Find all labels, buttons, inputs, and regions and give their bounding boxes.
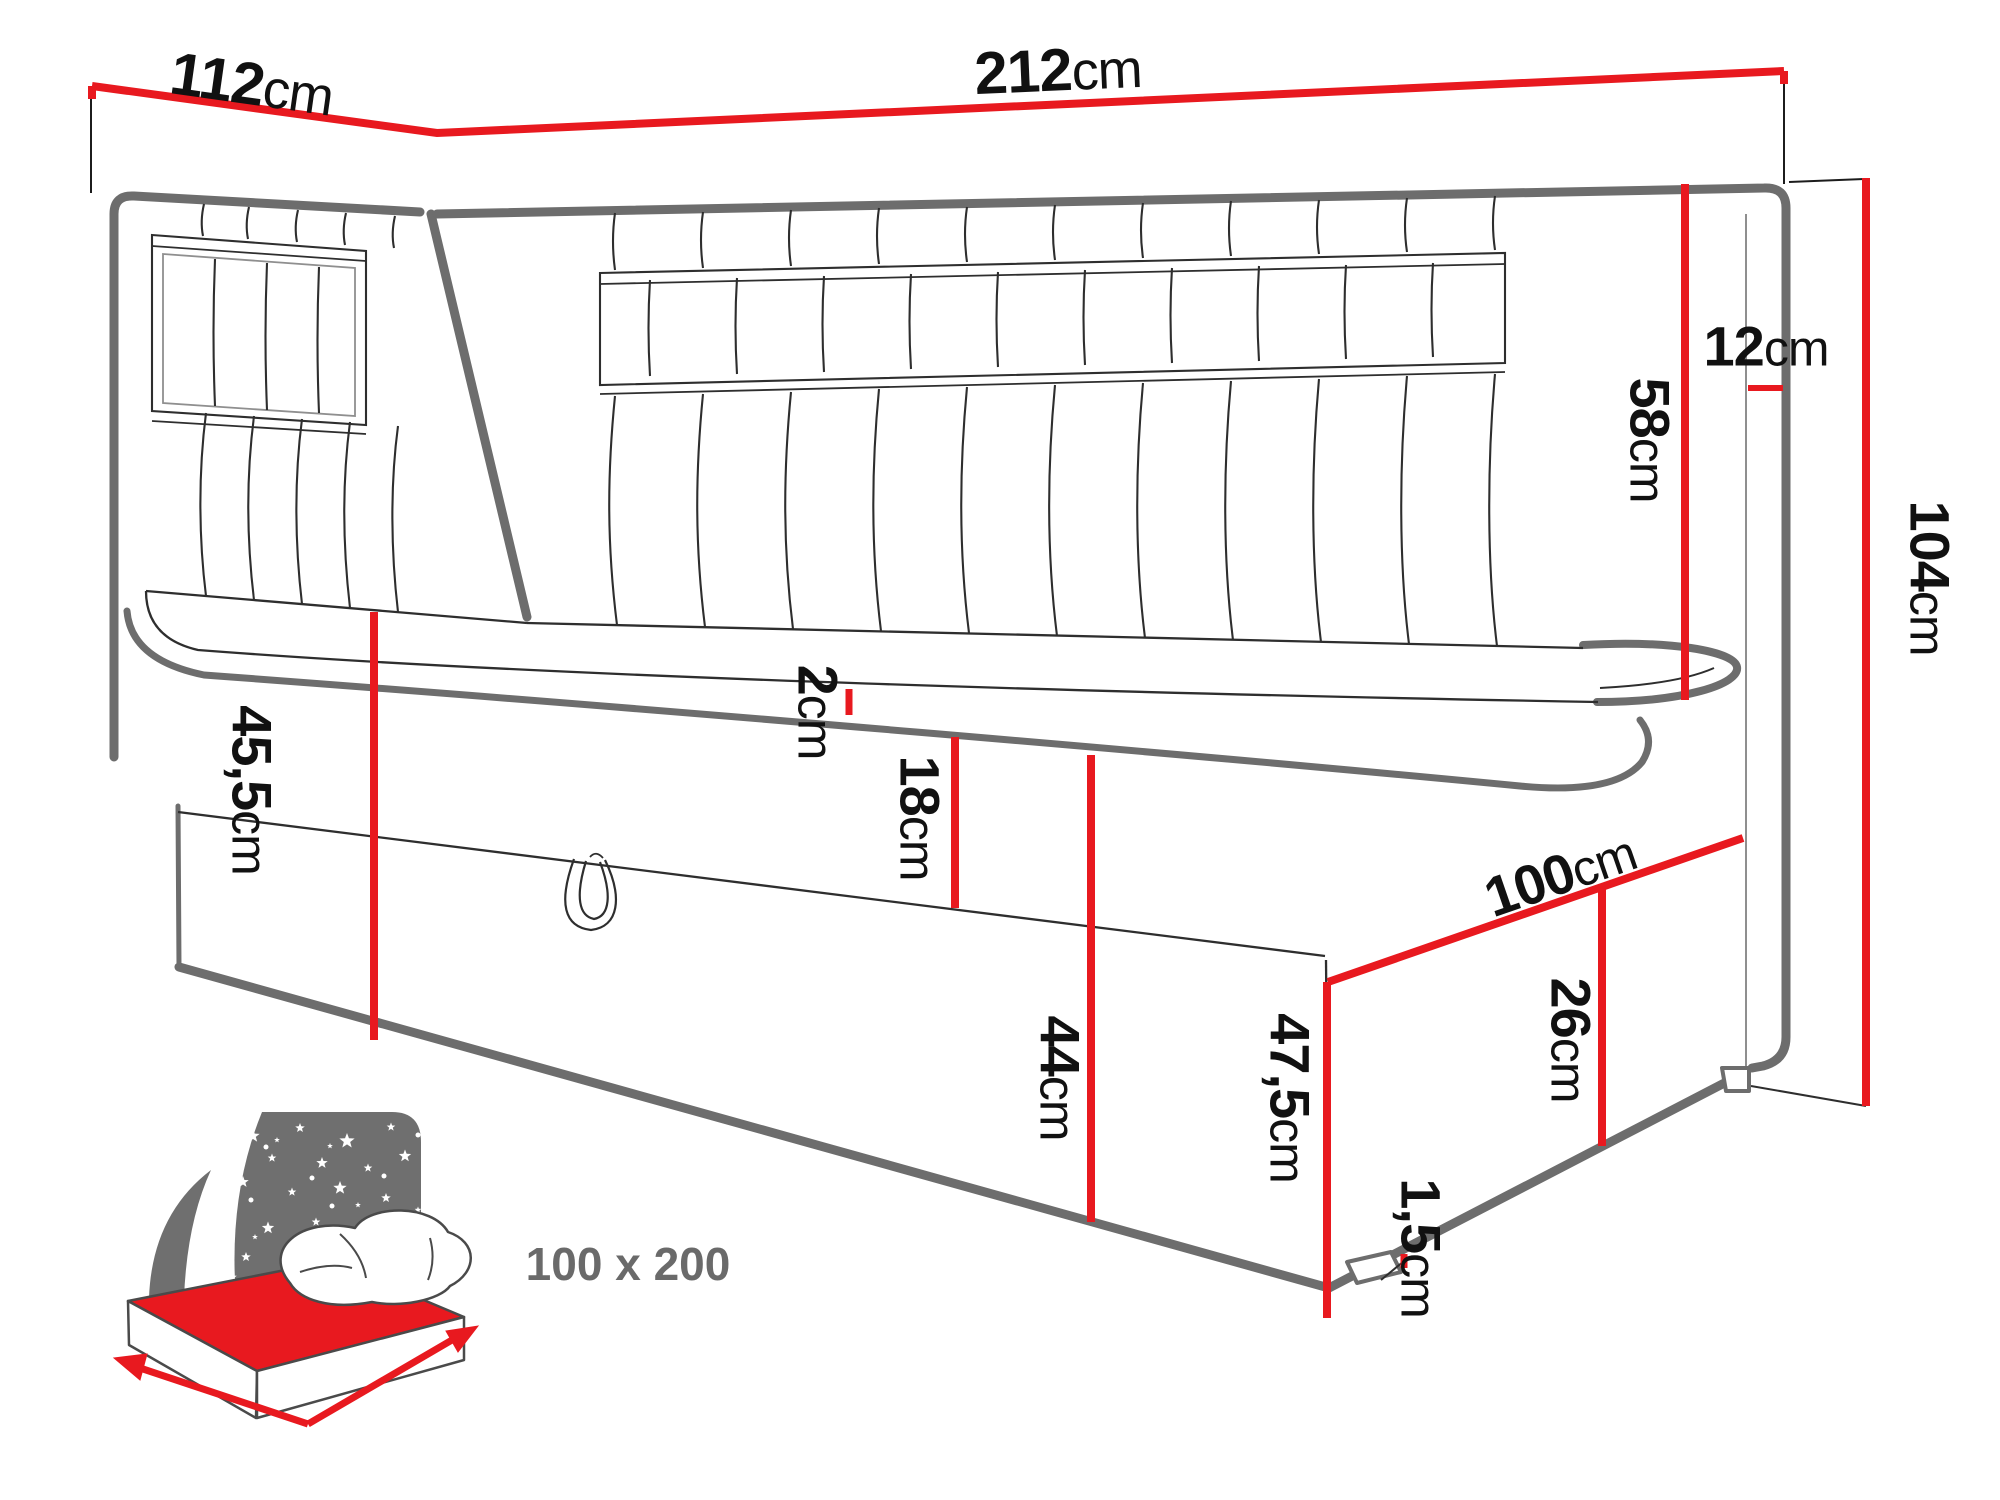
dim-unit: cm — [1070, 39, 1143, 102]
dim-label-45_5cm: 45,5cm — [220, 705, 285, 875]
base-left-edge — [178, 806, 179, 967]
dim-label-47_5cm: 47,5cm — [1258, 1013, 1323, 1183]
dim-unit: cm — [1764, 321, 1829, 377]
back-headboard-edge — [437, 188, 1786, 1068]
corner-seam — [431, 214, 527, 617]
bed-technical-diagram: 112cm 212cm 12cm 58cm 104cm 2cm 18cm 45,… — [0, 0, 2000, 1500]
left-niche-frame — [152, 235, 366, 425]
dim-value: 12 — [1704, 315, 1764, 378]
size-caption-text: 100 x 200 — [526, 1238, 731, 1290]
dim-value: 58 — [1619, 378, 1682, 438]
size-caption: 100 x 200 — [526, 1237, 731, 1291]
dim-value: 26 — [1540, 978, 1603, 1038]
dim-unit: cm — [890, 816, 946, 881]
dim-value: 2 — [787, 665, 850, 695]
dim-value: 104 — [1899, 500, 1962, 590]
right-foot — [1722, 1068, 1749, 1091]
dim-unit: cm — [1541, 1038, 1597, 1103]
dim-value: 47,5 — [1259, 1013, 1322, 1118]
topper-cap-line — [1600, 668, 1714, 688]
dim-unit: cm — [1391, 1253, 1447, 1318]
mattress-left-seam — [146, 591, 527, 623]
dim-label-1_5cm: 1,5cm — [1389, 1178, 1454, 1318]
dim-unit: cm — [788, 695, 844, 760]
dim-unit: cm — [1030, 1076, 1086, 1141]
dim-label-2cm: 2cm — [786, 665, 851, 760]
dim-label-26cm: 26cm — [1539, 978, 1604, 1103]
dim-label-212cm: 212cm — [973, 32, 1143, 108]
back-niche-shelf-line — [600, 264, 1505, 284]
dim-label-58cm: 58cm — [1618, 378, 1683, 503]
back-headboard-tufting — [600, 196, 1505, 646]
bed-size-icon — [114, 1112, 478, 1424]
dim-value: 45,5 — [221, 705, 284, 810]
dim-value: 1,5 — [1390, 1178, 1453, 1253]
starry-panel-sliver — [149, 1170, 211, 1298]
dim-unit: cm — [1620, 438, 1676, 503]
dim-value: 44 — [1029, 1016, 1092, 1076]
dim-label-104cm: 104cm — [1898, 500, 1963, 655]
dim-label-18cm: 18cm — [888, 756, 953, 881]
mattress-cap-edge — [1583, 644, 1737, 702]
arrowhead-left — [114, 1354, 147, 1380]
dim-unit: cm — [1900, 591, 1956, 656]
left-headboard-tufting — [152, 204, 398, 612]
dim-label-12cm: 12cm — [1704, 314, 1829, 379]
bed-drawing — [0, 0, 2000, 1500]
dim-line-112cm-212cm — [92, 71, 1784, 133]
dim-unit: cm — [259, 58, 337, 127]
dim-label-44cm: 44cm — [1028, 1016, 1093, 1141]
left-niche-inner — [163, 254, 355, 416]
drawer-handle-icon — [565, 854, 616, 930]
dim-unit: cm — [222, 810, 278, 875]
floor-line-right — [1751, 1086, 1866, 1106]
dim-value: 112 — [166, 39, 268, 118]
dim-unit: cm — [1260, 1118, 1316, 1183]
back-niche-bottom-line — [600, 372, 1505, 394]
dim-value: 18 — [889, 756, 952, 816]
dim-value: 212 — [973, 36, 1073, 107]
drawer-top-seam — [178, 812, 1325, 956]
